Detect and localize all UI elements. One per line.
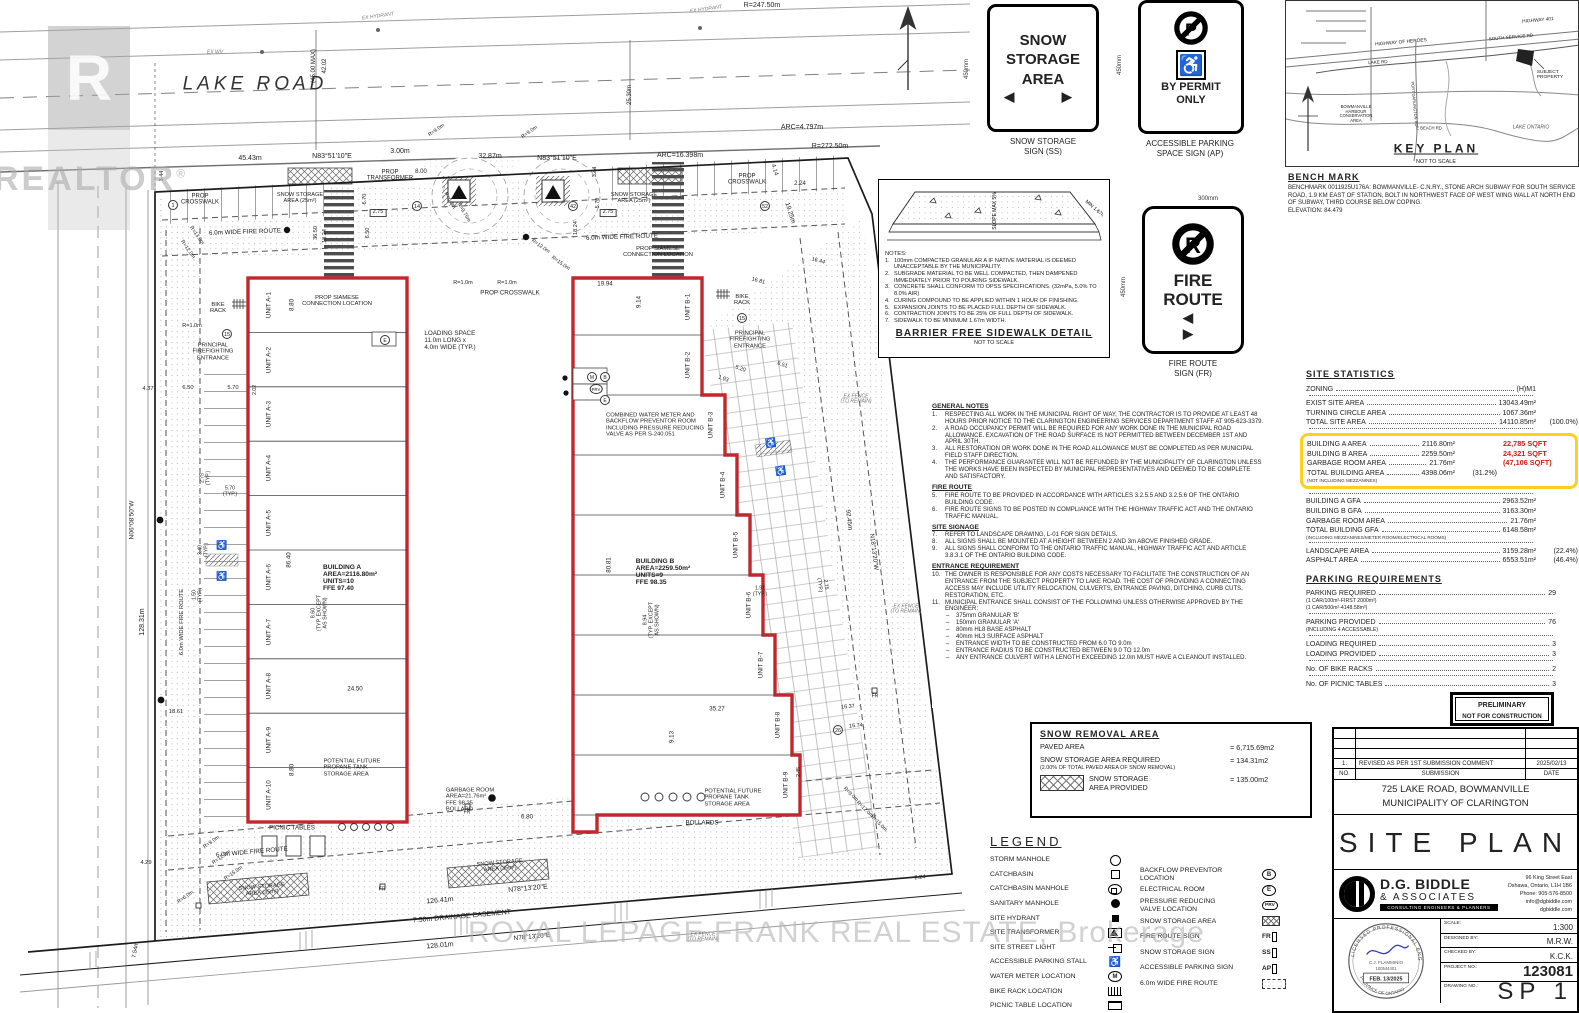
stat-row: LANDSCAPE AREA3159.28m²(22.4%) [1306, 545, 1578, 555]
field-value: 1:300 [1553, 923, 1573, 932]
bench-mark-body: BENCHMARK 0011925U176A: BOWMANVILLE- C.N… [1288, 185, 1578, 208]
sign-width-dim: 300mm [1158, 196, 1258, 202]
field-label: DESIGNED BY: [1444, 936, 1478, 941]
parking-row: (INCLUDING 4 ACCESSABLE) [1306, 626, 1556, 633]
legend-label: 6.0m WIDE FIRE ROUTE [1140, 980, 1262, 987]
legend-icon [1108, 928, 1122, 938]
parking-row: LOADING REQUIRED3 [1306, 638, 1556, 648]
parking-label: (1 CAR/500m²-4148.58m²) [1306, 605, 1367, 611]
subject-property-marker [1516, 49, 1534, 66]
svg-text:LICENSED PROFESSIONAL ENGINEER: LICENSED PROFESSIONAL ENGINEER [1342, 919, 1423, 962]
stat-label: GARBAGE ROOM AREA [1307, 460, 1386, 467]
stat-row: TURNING CIRCLE AREA1067.36m² [1306, 407, 1578, 417]
snow-required-label: SNOW STORAGE AREA REQUIRED [1040, 755, 1160, 764]
barrier-detail-title: BARRIER FREE SIDEWALK DETAIL [885, 328, 1103, 340]
legend-icon: E [1262, 885, 1276, 896]
snow-removal-title: SNOW REMOVAL AREA [1040, 729, 1302, 739]
note-text: SIDEWALK TO BE MINIMUM 1.67m WIDTH. [894, 318, 1006, 325]
note-item: 3.ALL RESTORATION OR WORK DONE IN THE RO… [932, 446, 1264, 460]
note-item: 2.A ROAD OCCUPANCY PERMIT WILL BE REQUIR… [932, 426, 1264, 447]
stat-label: TOTAL BUILDING AREA [1307, 470, 1384, 477]
notes-section: ENTRANCE REQUIREMENT 10.THE OWNER IS RES… [932, 563, 1264, 662]
parking-row: PARKING REQUIRED29 [1306, 587, 1556, 597]
stat-label: ZONING [1306, 386, 1333, 393]
no-parking-icon: P [1170, 7, 1212, 49]
drawing-no-field: DRAWING NO.:SP 1 [1441, 982, 1577, 1003]
revision-table: 1.REVISED AS PER 1ST SUBMISSION COMMENT2… [1334, 729, 1577, 780]
ap-sign-text: ONLY [1161, 94, 1221, 107]
site-statistics-title: SITE STATISTICS [1306, 369, 1578, 379]
field-value: SP 1 [1497, 982, 1573, 1003]
crosswalk [652, 162, 684, 278]
stat-row: (NOT INCLUDING MEZZANINES) [1307, 477, 1571, 483]
snow-removal-area-box: SNOW REMOVAL AREA PAVED AREA= 6,715.69m2… [1030, 722, 1312, 818]
note-item: 5.FIRE ROUTE TO BE PROVIDED IN ACCORDANC… [932, 493, 1264, 507]
legend-label: SANITARY MANHOLE [990, 900, 1108, 907]
stat-percent: (31.2%) [1455, 470, 1497, 477]
legend-label: CATCHBASIN MANHOLE [990, 885, 1108, 892]
snow-provided-label: SNOW STORAGE AREA PROVIDED [1089, 775, 1230, 792]
parking-value: 29 [1548, 590, 1556, 597]
preliminary-line: NOT FOR CONSTRUCTION [1456, 712, 1548, 721]
note-text: EXPANSION JOINTS TO BE PLACED FULL DEPTH… [894, 305, 1066, 312]
legend-item: PRESSURE REDUCING VALVE LOCATIONPRV [1140, 900, 1286, 911]
note-item: 1.RESPECTING ALL WORK IN THE MUNICIPAL R… [932, 412, 1264, 426]
snow-provided-value: = 135.00m2 [1230, 775, 1302, 784]
general-notes: GENERAL NOTES 1.RESPECTING ALL WORK IN T… [932, 400, 1264, 708]
fr-sign-caption: SIGN (FR) [1142, 369, 1244, 379]
revision-row: 1.REVISED AS PER 1ST SUBMISSION COMMENT2… [1334, 759, 1577, 769]
legend-title: LEGEND [990, 834, 1320, 849]
stat-sqft-red: 22,785 SQFT [1497, 439, 1571, 448]
legend-icon [1108, 870, 1122, 879]
stat-label: (NOT INCLUDING MEZZANINES) [1307, 478, 1377, 483]
note-number: 5. [885, 305, 894, 312]
legend-label: ELECTRICAL ROOM [1140, 886, 1262, 893]
note-item: 11.MUNICIPAL ENTRANCE SHALL CONSIST OF T… [932, 600, 1264, 614]
legend-label: SITE HYDRANT [990, 915, 1108, 922]
stat-label: BUILDING B AREA [1307, 451, 1367, 458]
barrier-note: 4.CURING COMPOUND TO BE APPLIED WITHIN 1… [885, 298, 1103, 305]
parking-row: (1 CAR/500m²-4148.58m²) [1306, 604, 1556, 611]
barrier-note: 7.SIDEWALK TO BE MINIMUM 1.67m WIDTH. [885, 318, 1103, 325]
project-address: 725 LAKE ROAD, BOWMANVILLE MUNICIPALITY … [1334, 780, 1577, 815]
sign-height-dim: 450mm [964, 59, 970, 79]
address-line: MUNICIPALITY OF CLARINGTON [1334, 797, 1577, 811]
note-text: CONCRETE SHALL CONFORM TO OPSS SPECIFICA… [894, 284, 1103, 297]
site-plan-geometry [0, 0, 970, 1013]
stat-label: ASPHALT AREA [1306, 557, 1358, 564]
company-name: D.G. BIDDLE [1380, 876, 1498, 892]
wheelchair-icon: ♿ [1176, 50, 1206, 80]
parking-row: LOADING PROVIDED3 [1306, 648, 1556, 658]
legend-label: BIKE RACK LOCATION [990, 988, 1108, 995]
note-text: SUBGRADE MATERIAL TO BE WELL COMPACTED, … [894, 271, 1103, 284]
notes-section: GENERAL NOTES 1.RESPECTING ALL WORK IN T… [932, 403, 1264, 481]
parking-label: PARKING REQUIRED [1306, 590, 1376, 597]
fr-sign-caption: FIRE ROUTE [1142, 359, 1244, 369]
slope-label: SLOPE MAX 5% [992, 192, 998, 230]
parking-value: 76 [1548, 619, 1556, 626]
project-no-field: PROJECT NO.:123081 [1441, 963, 1577, 982]
snow-sign-arrows: ◀ ▶ [992, 89, 1094, 105]
legend-label: BACKFLOW PREVENTOR LOCATION [1140, 867, 1262, 882]
rev-no: 1. [1334, 759, 1356, 768]
parking-label: No. OF PICNIC TABLES [1306, 681, 1382, 688]
legend-icon: AP [1262, 965, 1277, 972]
stat-value: 3159.28m² [1503, 548, 1536, 555]
ap-sign-text: BY PERMIT [1161, 81, 1221, 94]
stat-value: 21.76m² [1429, 460, 1455, 467]
stamp-seal: LICENSED PROFESSIONAL ENGINEER PROVINCE … [1334, 919, 1438, 1003]
parking-requirements: PARKING REQUIREMENTS PARKING REQUIRED29(… [1306, 574, 1556, 688]
stat-percent: (100.0%) [1536, 419, 1578, 426]
barrier-note: 2.SUBGRADE MATERIAL TO BE WELL COMPACTED… [885, 271, 1103, 284]
rev-header-no: NO. [1334, 769, 1356, 779]
note-number: 2. [885, 271, 894, 284]
stat-row: BUILDING B AREA2259.50m²24,321 SQFT [1307, 448, 1571, 458]
legend-label: ACCESSIBLE PARKING STALL [990, 958, 1108, 965]
stat-value: 21.76m² [1510, 518, 1536, 525]
bench-mark-elevation: ELEVATION: 84.479 [1288, 208, 1578, 216]
legend-item: CATCHBASIN [990, 870, 1122, 880]
notes-section-header: GENERAL NOTES [932, 403, 1264, 411]
stat-value: 13043.49m² [1499, 400, 1536, 407]
note-item: –375mm GRANULAR 'B' [946, 613, 1264, 620]
sign-height-dim: 450mm [1121, 277, 1127, 297]
sidewalk-sketch: SLOPE MAX 5% MIN 1.67m [885, 184, 1103, 246]
snow-storage-sign: 450mm SNOW STORAGE AREA ◀ ▶ SNOW STORAGE… [975, 4, 1105, 157]
stat-label: BUILDING A GFA [1306, 498, 1361, 505]
legend-icon [1108, 915, 1122, 922]
barrier-notes-header: NOTES: [885, 251, 1103, 258]
notes-section-header: SITE SIGNAGE [932, 524, 1264, 532]
parking-label: LOADING REQUIRED [1306, 641, 1376, 648]
revision-header-row: NO.SUBMISSIONDATE [1334, 769, 1577, 779]
parking-label: (1 CAR/100m²-FIRST 2000m²) [1306, 598, 1377, 604]
parking-value: 3 [1552, 641, 1556, 648]
notes-section-header: ENTRANCE REQUIREMENT [932, 563, 1264, 571]
parking-label: No. OF BIKE RACKS [1306, 666, 1373, 673]
barrier-note: 6.CONTRACTION JOINTS TO BE 25% OF FULL D… [885, 311, 1103, 318]
legend-icon: ♿ [1108, 957, 1122, 968]
notes-items: 5.FIRE ROUTE TO BE PROVIDED IN ACCORDANC… [932, 493, 1264, 521]
stat-row [1306, 426, 1578, 431]
bench-mark-title: BENCH MARK [1288, 172, 1578, 183]
stat-value: 4398.06m² [1422, 470, 1455, 477]
legend-item: FIRE ROUTE SIGNFR [1140, 931, 1286, 942]
key-plan-map [1286, 1, 1579, 167]
lake-road-lines [0, 4, 970, 172]
field-value: K.C.K. [1550, 952, 1573, 961]
stat-label: LANDSCAPE AREA [1306, 548, 1369, 555]
legend-icon [1262, 916, 1280, 926]
snow-required-value: = 134.31m2 [1230, 756, 1302, 765]
sign-height-dim: 450mm [1117, 55, 1123, 75]
note-item: –ENTRANCE WIDTH TO BE CONSTRUCTED FROM 6… [946, 641, 1264, 648]
company-email: info@dgbiddle.com [1503, 898, 1572, 906]
parking-title: PARKING REQUIREMENTS [1306, 574, 1556, 584]
note-item: –40mm HL3 SURFACE ASPHALT [946, 634, 1264, 641]
left-road-lines [58, 182, 148, 1008]
barrier-note: 5.EXPANSION JOINTS TO BE PLACED FULL DEP… [885, 305, 1103, 312]
company-address: Oshawa, Ontario, L1H 1B6 [1503, 882, 1572, 890]
stat-percent: (46.4%) [1536, 557, 1578, 564]
note-item: 7.REFER TO LANDSCAPE DRAWING, L-01 FOR S… [932, 532, 1264, 539]
building-a [248, 278, 407, 822]
rev-desc: REVISED AS PER 1ST SUBMISSION COMMENT [1356, 761, 1525, 767]
title-block: 1.REVISED AS PER 1ST SUBMISSION COMMENT2… [1332, 727, 1579, 1013]
highlighted-stats: BUILDING A AREA2116.80m²22,785 SQFTBUILD… [1300, 433, 1578, 488]
snow-storage-swatch [1040, 775, 1084, 791]
fr-sign-line: FIRE [1163, 272, 1223, 291]
legend-icon [1108, 987, 1122, 996]
note-item: –150mm GRANULAR 'A' [946, 620, 1264, 627]
stat-label: TOTAL BUILDING GFA [1306, 527, 1379, 534]
legend-label: SNOW STORAGE AREA [1140, 918, 1262, 925]
legend-label: PICNIC TABLE LOCATION [990, 1002, 1108, 1009]
legend-item: ACCESSIBLE PARKING STALL♿ [990, 957, 1122, 967]
fr-sign-line: ROUTE [1163, 291, 1223, 310]
stat-sqft-red: (47,106 SQFT) [1497, 458, 1571, 467]
field-label: SCALE: [1444, 921, 1461, 926]
legend-item: 6.0m WIDE FIRE ROUTE [1140, 978, 1286, 989]
legend-label: WATER METER LOCATION [990, 973, 1108, 980]
note-item: –ANY ENTRANCE CULVERT WITH A LENGTH EXCE… [946, 655, 1264, 662]
note-item: 9.ALL SIGNS SHALL CONFORM TO THE ONTARIO… [932, 546, 1264, 560]
ap-sign-caption: ACCESSIBLE PARKING [1132, 139, 1248, 149]
note-number: 7. [885, 318, 894, 325]
designed-by-field: DESIGNED BY:M.R.W. [1441, 934, 1577, 949]
legend-item: SITE HYDRANT [990, 913, 1122, 923]
svg-text:FEB. 13/2025: FEB. 13/2025 [1370, 976, 1403, 982]
legend-left-column: STORM MANHOLECATCHBASINCATCHBASIN MANHOL… [990, 855, 1122, 1011]
stat-label: (INCLUDING MEZZANINES/METER ROOM/ELECTRI… [1306, 535, 1446, 540]
legend-icon: M [1108, 971, 1122, 982]
legend-item: PICNIC TABLE LOCATION [990, 1001, 1122, 1011]
signature [1367, 945, 1409, 954]
checked-by-field: CHECKED BY:K.C.K. [1441, 948, 1577, 963]
notes-items: 10.THE OWNER IS RESPONSIBLE FOR ANY COST… [932, 572, 1264, 662]
revision-row [1334, 729, 1577, 739]
stat-label: BUILDING A AREA [1307, 441, 1367, 448]
stat-value: 2259.50m² [1422, 451, 1455, 458]
legend-label: SNOW STORAGE SIGN [1140, 949, 1262, 956]
notes-section: SITE SIGNAGE 7.REFER TO LANDSCAPE DRAWIN… [932, 524, 1264, 560]
stat-label: BUILDING B GFA [1306, 508, 1362, 515]
legend-icon: B [1262, 869, 1276, 880]
snow-sign-line: STORAGE [1006, 50, 1080, 70]
legend-label: FIRE ROUTE SIGN [1140, 933, 1262, 940]
note-item: 6.FIRE ROUTE SIGNS TO BE POSTED IN COMPL… [932, 507, 1264, 521]
note-number: 6. [885, 311, 894, 318]
note-item: 4.THE PERFORMANCE GUARANTEE WILL NOT BE … [932, 460, 1264, 481]
stat-value: 2116.80m² [1422, 441, 1455, 448]
legend-label: ACCESSIBLE PARKING SIGN [1140, 964, 1262, 971]
company-associates: & ASSOCIATES [1380, 892, 1498, 903]
address-line: 725 LAKE ROAD, BOWMANVILLE [1334, 783, 1577, 797]
legend-item: SNOW STORAGE AREA [1140, 916, 1286, 927]
company-address: 96 King Street East [1503, 874, 1572, 882]
snow-sign-caption: SNOW STORAGE [987, 137, 1099, 147]
stat-row: BUILDING A GFA2963.52m² [1306, 496, 1578, 506]
stat-row: EXIST SITE AREA13043.49m² [1306, 398, 1578, 408]
snow-required-sub: (2.00% OF TOTAL PAVED AREA OF SNOW REMOV… [1040, 765, 1230, 771]
stat-row: GARBAGE ROOM AREA21.76m² [1306, 515, 1578, 525]
stat-value: 14110.85m² [1499, 419, 1536, 426]
snow-sign-caption: SIGN (SS) [987, 147, 1099, 157]
legend-icon [1262, 979, 1286, 989]
company-phone: Phone: 905-576-8500 [1503, 890, 1572, 898]
north-arrow-icon [898, 8, 915, 90]
field-label: CHECKED BY: [1444, 950, 1476, 955]
stat-row: BUILDING B GFA3163.30m² [1306, 505, 1578, 515]
stat-label: EXIST SITE AREA [1306, 400, 1364, 407]
preliminary-stamp: PRELIMINARY NOT FOR CONSTRUCTION [1455, 697, 1549, 721]
legend-icon [1108, 855, 1122, 866]
parking-label: (INCLUDING 4 ACCESSABLE) [1306, 627, 1378, 633]
field-label: DRAWING NO.: [1444, 984, 1478, 989]
snow-sign-line: SNOW [1006, 31, 1080, 51]
legend-item: ELECTRICAL ROOME [1140, 885, 1286, 896]
stat-label: TURNING CIRCLE AREA [1306, 410, 1386, 417]
field-value: M.R.W. [1547, 937, 1573, 946]
rev-date: 2025/02/13 [1525, 759, 1577, 768]
legend-icon: PRV [1262, 901, 1278, 910]
legend-icon [1108, 944, 1122, 952]
parking-label: LOADING PROVIDED [1306, 651, 1376, 658]
stat-value: (H)M1 [1517, 386, 1536, 393]
svg-text:C.J. FLAMMINIO: C.J. FLAMMINIO [1369, 960, 1404, 965]
parking-row: PARKING PROVIDED76 [1306, 616, 1556, 626]
not-to-scale: NOT TO SCALE [885, 340, 1103, 347]
drawing-title: SITE PLAN [1334, 815, 1577, 870]
legend-label: PRESSURE REDUCING VALVE LOCATION [1140, 898, 1262, 913]
stat-percent: (22.4%) [1536, 548, 1578, 555]
stat-row: TOTAL BUILDING AREA4398.06m²(31.2%) [1307, 467, 1571, 477]
note-item: 8.ALL SIGNS SHALL BE MOUNTED AT A HEIGHT… [932, 539, 1264, 546]
legend-label: STORM MANHOLE [990, 856, 1108, 863]
stat-row: ASPHALT AREA6553.51m²(46.4%) [1306, 555, 1578, 565]
legend-item: BACKFLOW PREVENTOR LOCATIONB [1140, 869, 1286, 880]
fr-sign-arrows: ◀ ▶ [1145, 310, 1241, 342]
legend: LEGEND STORM MANHOLECATCHBASINCATCHBASIN… [990, 834, 1320, 1013]
field-label: PROJECT NO.: [1444, 965, 1478, 970]
note-item: 10.THE OWNER IS RESPONSIBLE FOR ANY COST… [932, 572, 1264, 600]
notes-section: FIRE ROUTE 5.FIRE ROUTE TO BE PROVIDED I… [932, 484, 1264, 520]
ap-sign-caption: SPACE SIGN (AP) [1132, 149, 1248, 159]
stat-row: GARBAGE ROOM AREA21.76m²(47,106 SQFT) [1307, 458, 1571, 468]
parking-label: PARKING PROVIDED [1306, 619, 1376, 626]
stat-label: TOTAL SITE AREA [1306, 419, 1366, 426]
note-number: 3. [885, 284, 894, 297]
stat-value: 1067.36m² [1503, 410, 1536, 417]
legend-item: WATER METER LOCATIONM [990, 972, 1122, 982]
revision-row [1334, 739, 1577, 749]
company-tagline: CONSULTING ENGINEERS & PLANNERS [1380, 904, 1498, 911]
barrier-free-sidewalk-detail: SLOPE MAX 5% MIN 1.67m NOTES: 1.100mm CO… [878, 179, 1110, 358]
parking-value: 2 [1552, 666, 1556, 673]
legend-item: BIKE RACK LOCATION [990, 986, 1122, 996]
stat-value: 6148.58m² [1503, 527, 1536, 534]
notes-items: 7.REFER TO LANDSCAPE DRAWING, L-01 FOR S… [932, 532, 1264, 560]
legend-item: ACCESSIBLE PARKING SIGNAP [1140, 963, 1286, 974]
fire-route-sign: 300mm 450mm R FIRE ROUTE ◀ ▶ FIRE ROUTE … [1128, 196, 1258, 379]
engineer-stamp: LICENSED PROFESSIONAL ENGINEER PROVINCE … [1334, 919, 1440, 1003]
legend-icon [1108, 1001, 1122, 1010]
accessible-parking-sign: 450mm P ♿ BY PERMIT ONLY ACCESSIBLE PARK… [1122, 0, 1252, 159]
rev-header-desc: SUBMISSION [1356, 771, 1525, 777]
bench-mark: BENCH MARK BENCHMARK 0011925U176A: BOWMA… [1288, 172, 1578, 215]
stat-label: GARBAGE ROOM AREA [1306, 518, 1385, 525]
keyplan-north-arrow [1298, 87, 1318, 151]
paved-area-label: PAVED AREA [1040, 743, 1230, 752]
rev-header-date: DATE [1525, 769, 1577, 779]
stat-value: 3163.30m² [1503, 508, 1536, 515]
notes-items: 1.RESPECTING ALL WORK IN THE MUNICIPAL R… [932, 412, 1264, 482]
company-website: dgbiddle.com [1503, 906, 1572, 914]
site-plan-drawing [0, 0, 970, 1013]
note-number: 1. [885, 258, 894, 271]
note-number: 4. [885, 298, 894, 305]
stat-value: 2963.52m² [1503, 498, 1536, 505]
stat-row: TOTAL SITE AREA14110.85m²(100.0%) [1306, 417, 1578, 427]
legend-item: STORM MANHOLE [990, 855, 1122, 865]
svg-text:100544401: 100544401 [1376, 966, 1398, 971]
stat-sqft-red: 24,321 SQFT [1497, 449, 1571, 458]
paved-area-value: = 6,715.69m2 [1230, 743, 1302, 752]
stat-row: TOTAL BUILDING GFA6148.58m² [1306, 525, 1578, 535]
legend-item: SITE TRANSFORMER [990, 928, 1122, 938]
legend-icon [1108, 884, 1122, 895]
parking-row: No. OF PICNIC TABLES3 [1306, 678, 1556, 688]
legend-label: CATCHBASIN [990, 871, 1108, 878]
key-plan: HIGHWAY OF HEROESHIGHWAY 401SOUTH SERVIC… [1285, 0, 1579, 167]
field-value: 123081 [1523, 963, 1573, 980]
note-text: 100mm COMPACTED GRANULAR A IF NATIVE MAT… [894, 258, 1103, 271]
parking-value: 3 [1552, 681, 1556, 688]
parking-value: 3 [1552, 651, 1556, 658]
snow-sign-line: AREA [1006, 70, 1080, 90]
legend-icon: FR [1262, 933, 1277, 940]
legend-item: SNOW STORAGE SIGNSS [1140, 947, 1286, 958]
legend-item: CATCHBASIN MANHOLE [990, 884, 1122, 894]
note-item: –80mm HL8 BASE ASPHALT [946, 627, 1264, 634]
stat-value: 6553.51m² [1503, 557, 1536, 564]
revision-row [1334, 749, 1577, 759]
legend-icon: SS [1262, 949, 1277, 956]
stat-row: BUILDING A AREA2116.80m²22,785 SQFT [1307, 438, 1571, 448]
barrier-note: 3.CONCRETE SHALL CONFORM TO OPSS SPECIFI… [885, 284, 1103, 297]
title-block-fields: SCALE:1:300 DESIGNED BY:M.R.W. CHECKED B… [1440, 919, 1577, 1003]
legend-item: SITE STREET LIGHT [990, 943, 1122, 953]
legend-label: SITE TRANSFORMER [990, 929, 1108, 936]
company-block: D.G. BIDDLE & ASSOCIATES CONSULTING ENGI… [1334, 870, 1577, 920]
no-parking-icon: R [1167, 218, 1219, 270]
parking-row: (1 CAR/100m²-FIRST 2000m²) [1306, 597, 1556, 604]
note-text: CONTRACTION JOINTS TO BE 25% OF FULL DEP… [894, 311, 1073, 318]
crosswalk [324, 190, 354, 278]
note-item: –ENTRANCE RADIUS TO BE CONSTRUCTED BETWE… [946, 648, 1264, 655]
site-statistics: SITE STATISTICS ZONING(H)M1EXIST SITE AR… [1306, 369, 1578, 564]
stat-row: ZONING(H)M1 [1306, 383, 1578, 393]
legend-item: SANITARY MANHOLE [990, 899, 1122, 909]
legend-icon [1108, 899, 1122, 908]
scale-field: SCALE:1:300 [1441, 919, 1577, 934]
barrier-note: 1.100mm COMPACTED GRANULAR A IF NATIVE M… [885, 258, 1103, 271]
legend-right-column: BACKFLOW PREVENTOR LOCATIONBELECTRICAL R… [1140, 869, 1286, 1011]
legend-label: SITE STREET LIGHT [990, 944, 1108, 951]
